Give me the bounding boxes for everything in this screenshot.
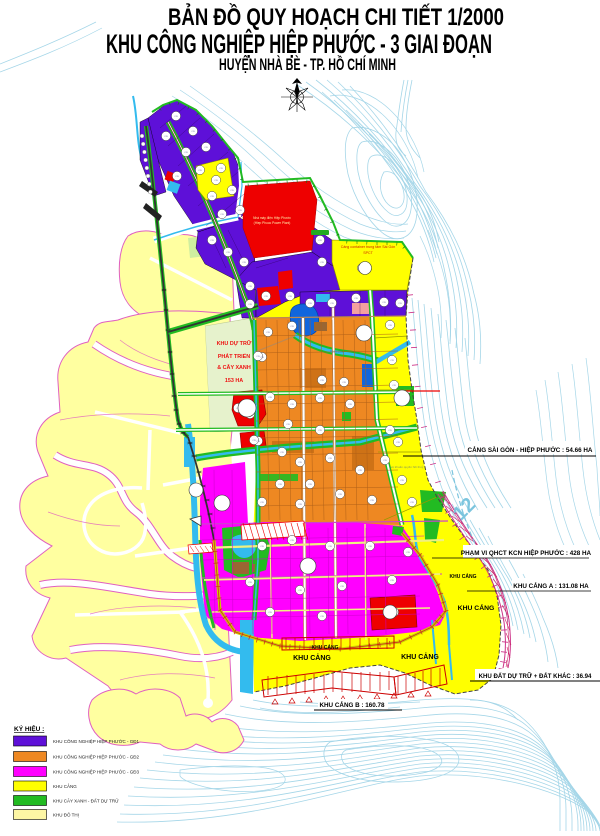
svg-text:CN: CN	[368, 546, 372, 548]
svg-text:CN: CN	[298, 504, 302, 506]
svg-text:KHU CÔNG NGHIỆP HIỆP PHƯỚC - 3: KHU CÔNG NGHIỆP HIỆP PHƯỚC - 3 GIAI ĐOẠN	[106, 28, 492, 59]
svg-text:CN: CN	[219, 168, 223, 170]
svg-text:CN: CN	[184, 152, 188, 154]
svg-text:CN: CN	[400, 480, 404, 482]
svg-text:CN: CN	[328, 458, 332, 460]
svg-text:& CÂY XANH: & CÂY XANH	[217, 364, 251, 371]
svg-text:CN: CN	[210, 240, 214, 242]
svg-text:SPCT: SPCT	[363, 251, 373, 255]
svg-text:KHU CÔNG NGHIỆP HIỆP PHƯỚC - G: KHU CÔNG NGHIỆP HIỆP PHƯỚC - GĐ1	[53, 737, 140, 744]
svg-text:KHU CÂY XANH - ĐẤT DỰ TRỮ: KHU CÂY XANH - ĐẤT DỰ TRỮ	[53, 798, 119, 804]
svg-text:KHU CẢNG: KHU CẢNG	[312, 644, 339, 651]
svg-text:CN: CN	[191, 131, 195, 133]
svg-text:KHU CÔNG NGHIỆP HIỆP PHƯỚC - G: KHU CÔNG NGHIỆP HIỆP PHƯỚC - GĐ2	[53, 753, 140, 760]
svg-text:CN: CN	[248, 304, 252, 306]
svg-text:CN: CN	[348, 404, 352, 406]
svg-text:CN: CN	[388, 325, 392, 327]
svg-text:vệ khuẩn quyền hồi thuỷ: vệ khuẩn quyền hồi thuỷ	[391, 465, 424, 469]
svg-text:KHU CẢNG: KHU CẢNG	[53, 783, 77, 789]
svg-text:CN: CN	[290, 540, 294, 542]
svg-text:CN: CN	[226, 252, 230, 254]
svg-text:CN: CN	[268, 397, 272, 399]
svg-text:CN: CN	[330, 303, 334, 305]
svg-text:CN: CN	[370, 500, 374, 502]
svg-text:CN: CN	[256, 441, 260, 443]
svg-text:CN: CN	[260, 546, 264, 548]
svg-text:CN: CN	[410, 502, 414, 504]
svg-text:CN: CN	[210, 196, 214, 198]
svg-text:(Hiep Phuoc Power Plant): (Hiep Phuoc Power Plant)	[254, 221, 291, 225]
svg-text:CN: CN	[298, 462, 302, 464]
svg-text:CN: CN	[320, 616, 324, 618]
svg-text:KÝ HIỆU :: KÝ HIỆU :	[14, 724, 44, 733]
svg-text:Nhà máy điện Hiệp Phước: Nhà máy điện Hiệp Phước	[253, 216, 291, 220]
svg-text:CN: CN	[268, 612, 272, 614]
svg-text:KHU CÔNG NGHIỆP HIỆP PHƯỚC - G: KHU CÔNG NGHIỆP HIỆP PHƯỚC - GĐ3	[53, 768, 140, 775]
svg-text:CN: CN	[252, 440, 256, 442]
svg-text:CN: CN	[260, 357, 264, 359]
svg-text:PHÁT TRIỂN: PHÁT TRIỂN	[218, 353, 250, 360]
svg-text:CN: CN	[318, 240, 322, 242]
svg-text:CN: CN	[248, 286, 252, 288]
svg-text:CN: CN	[298, 590, 302, 592]
svg-text:CN: CN	[174, 116, 178, 118]
svg-text:CẢNG SÀI GÒN - HIỆP PHƯỚC : 54: CẢNG SÀI GÒN - HIỆP PHƯỚC : 54.66 HA	[468, 445, 593, 454]
svg-text:KHU CẢNG A : 131.08 HA: KHU CẢNG A : 131.08 HA	[513, 581, 589, 590]
svg-text:PHẠM VI QHCT KCN HIỆP PHƯỚC :: PHẠM VI QHCT KCN HIỆP PHƯỚC : 428 HA	[461, 548, 592, 557]
svg-text:CN: CN	[214, 180, 218, 182]
svg-text:CN: CN	[392, 385, 396, 387]
svg-text:CN: CN	[288, 296, 292, 298]
svg-text:CN: CN	[204, 147, 208, 149]
svg-text:CN: CN	[264, 296, 268, 298]
svg-text:CN: CN	[238, 210, 242, 212]
svg-text:BẢN ĐỒ QUY HOẠCH CHI TIẾT 1/20: BẢN ĐỒ QUY HOẠCH CHI TIẾT 1/2000	[168, 2, 504, 31]
svg-text:CN: CN	[290, 326, 294, 328]
svg-text:KHU DỰ TRỮ: KHU DỰ TRỮ	[217, 340, 252, 347]
svg-text:KHU CẢNG: KHU CẢNG	[401, 652, 439, 661]
svg-text:HUYỆN NHÀ BÈ - TP. HỒ CHÍ MINH: HUYỆN NHÀ BÈ - TP. HỒ CHÍ MINH	[219, 55, 396, 74]
svg-text:KHU CẢNG: KHU CẢNG	[458, 603, 495, 612]
svg-text:CN: CN	[406, 552, 410, 554]
svg-text:CN: CN	[390, 360, 394, 362]
svg-text:CN: CN	[354, 298, 358, 300]
svg-text:CN: CN	[198, 170, 202, 172]
svg-text:KHU CẢNG: KHU CẢNG	[293, 653, 331, 662]
svg-text:CN: CN	[396, 442, 400, 444]
svg-text:CN: CN	[383, 460, 387, 462]
svg-text:CN: CN	[342, 382, 346, 384]
svg-text:CN: CN	[308, 303, 312, 305]
svg-text:CN: CN	[318, 430, 322, 432]
svg-text:CN: CN	[358, 470, 362, 472]
svg-text:CN: CN	[242, 262, 246, 264]
svg-text:CN: CN	[230, 190, 234, 192]
svg-text:CN: CN	[220, 214, 224, 216]
svg-text:CN: CN	[398, 303, 402, 305]
svg-text:CN: CN	[286, 424, 290, 426]
svg-text:CN: CN	[328, 546, 332, 548]
svg-text:CN: CN	[382, 302, 386, 304]
svg-text:CN: CN	[390, 580, 394, 582]
svg-text:CN: CN	[175, 176, 179, 178]
svg-text:Cảng container trung tâm Sài G: Cảng container trung tâm Sài Gòn	[341, 245, 396, 249]
svg-text:CN: CN	[290, 404, 294, 406]
svg-text:CN: CN	[256, 356, 260, 358]
svg-text:CN: CN	[308, 484, 312, 486]
svg-text:CN: CN	[280, 452, 284, 454]
svg-text:CN: CN	[320, 262, 324, 264]
svg-text:CN: CN	[278, 484, 282, 486]
svg-text:CN: CN	[340, 586, 344, 588]
svg-text:CN: CN	[260, 502, 264, 504]
svg-text:CN: CN	[248, 582, 252, 584]
svg-text:CN: CN	[320, 380, 324, 382]
svg-text:CN: CN	[338, 494, 342, 496]
svg-text:KHU ĐÔ THỊ: KHU ĐÔ THỊ	[53, 812, 79, 818]
svg-text:KHU CẢNG: KHU CẢNG	[450, 573, 477, 580]
svg-text:153 HA: 153 HA	[225, 378, 243, 384]
svg-text:KHU ĐẤT DỰ TRỮ + ĐẤT KHÁC : 36: KHU ĐẤT DỰ TRỮ + ĐẤT KHÁC : 36.94	[479, 673, 592, 680]
svg-text:KHU CẢNG B : 160.78: KHU CẢNG B : 160.78	[319, 700, 385, 709]
svg-text:CN: CN	[318, 398, 322, 400]
svg-text:CN: CN	[164, 136, 168, 138]
svg-text:CN: CN	[388, 430, 392, 432]
svg-text:CN: CN	[266, 332, 270, 334]
